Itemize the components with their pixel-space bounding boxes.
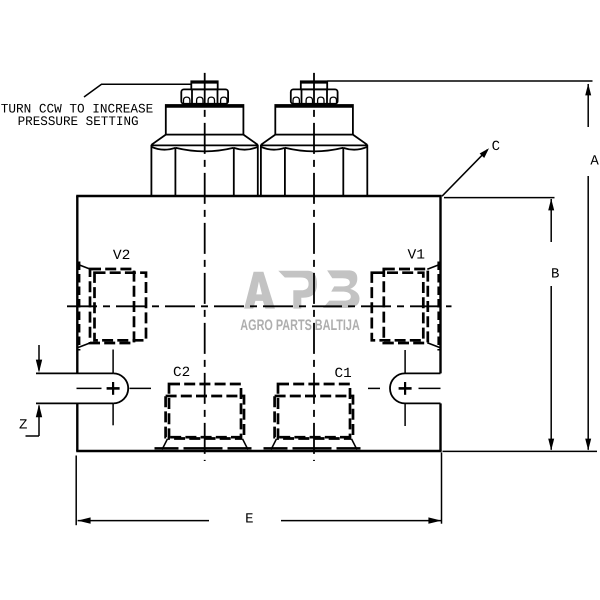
svg-text:C1: C1 xyxy=(335,366,352,382)
svg-text:C: C xyxy=(492,139,500,155)
svg-text:A: A xyxy=(590,154,599,170)
svg-text:AGRO PARTS BALTIJA: AGRO PARTS BALTIJA xyxy=(240,317,360,334)
svg-text:E: E xyxy=(245,512,253,528)
svg-text:V1: V1 xyxy=(408,248,426,264)
svg-text:C2: C2 xyxy=(173,365,190,381)
svg-text:PRESSURE SETTING: PRESSURE SETTING xyxy=(18,114,139,129)
svg-text:Z: Z xyxy=(19,418,27,434)
svg-text:V2: V2 xyxy=(113,248,130,264)
svg-text:B: B xyxy=(551,267,559,283)
